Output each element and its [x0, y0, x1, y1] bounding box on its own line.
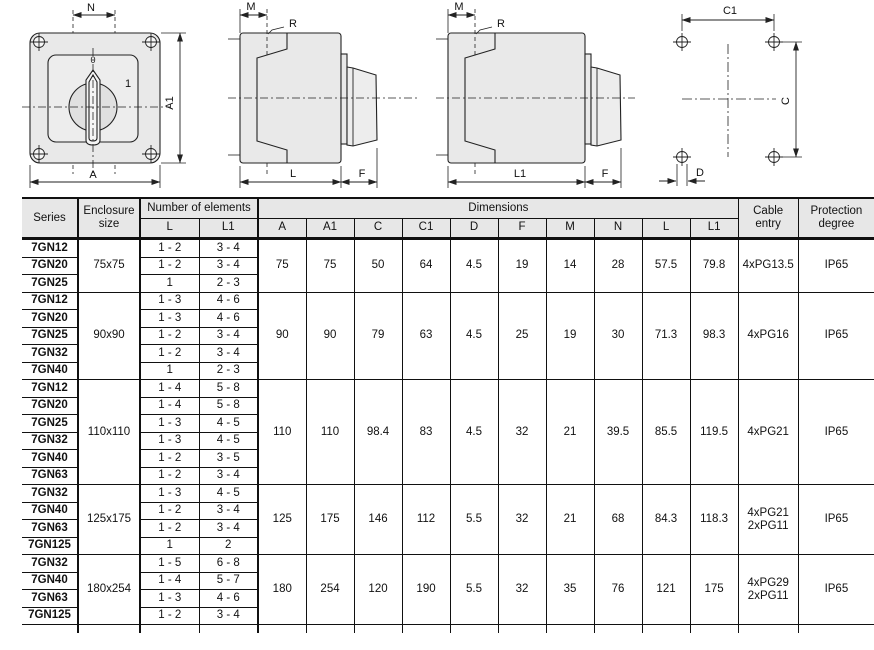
dimension-cell: 112	[402, 485, 450, 555]
series-cell: 7GN12	[22, 380, 78, 398]
dimension-cell: 63	[402, 292, 450, 380]
elements-l-cell: 1 - 2	[140, 450, 199, 468]
cable-entry-cell: 4xPG21	[738, 380, 798, 485]
elements-l-cell: 1 - 2	[140, 607, 199, 625]
dim-label-m: M	[246, 1, 255, 13]
elements-l-cell: 1	[140, 275, 199, 293]
dimension-cell: 32	[498, 485, 546, 555]
handle-side	[347, 67, 377, 146]
elements-l1-cell: 3 - 4	[199, 520, 258, 538]
dim-label-r: R	[497, 18, 505, 30]
spec-table-body: 7GN1275x751 - 23 - 4757550644.519142857.…	[22, 239, 874, 634]
clipped-cell	[78, 625, 140, 634]
elements-l1-cell: 4 - 5	[199, 432, 258, 450]
dimension-cell: 19	[546, 292, 594, 380]
dim-label-l: L	[290, 168, 296, 180]
dimension-cell: 50	[354, 239, 402, 293]
series-cell: 7GN32	[22, 345, 78, 363]
header-number-of-elements: Number of elements	[140, 198, 258, 218]
elements-l-cell: 1 - 3	[140, 432, 199, 450]
elements-l1-cell: 3 - 4	[199, 239, 258, 258]
dimension-cell: 119.5	[690, 380, 738, 485]
drill-hole	[673, 33, 691, 51]
dimension-cell: 121	[642, 555, 690, 625]
elements-l-cell: 1 - 3	[140, 310, 199, 328]
elements-l-cell: 1 - 3	[140, 590, 199, 608]
dim-label-l1: L1	[514, 168, 526, 180]
series-cell: 7GN40	[22, 572, 78, 590]
header-protection-degree: Protection degree	[798, 198, 874, 239]
dimension-cell: 146	[354, 485, 402, 555]
dim-label-r: R	[289, 18, 297, 30]
dimension-cell: 30	[594, 292, 642, 380]
dimension-cell: 175	[306, 485, 354, 555]
dimension-cell: 14	[546, 239, 594, 293]
enclosure-size-cell: 110x110	[78, 380, 140, 485]
elements-l1-cell: 3 - 4	[199, 607, 258, 625]
clipped-cell	[642, 625, 690, 634]
series-cell: 7GN63	[22, 520, 78, 538]
table-row: 7GN32125x1751 - 34 - 51251751461125.5322…	[22, 485, 874, 503]
clipped-cell	[690, 625, 738, 634]
header-series: Series	[22, 198, 78, 239]
dim-label-a1: A1	[164, 96, 176, 109]
drill-hole	[765, 148, 783, 166]
center-cross	[682, 44, 776, 157]
elements-l1-cell: 3 - 4	[199, 327, 258, 345]
elements-l-cell: 1 - 3	[140, 292, 199, 310]
elements-l-cell: 1 - 3	[140, 485, 199, 503]
enclosure-size-cell: 90x90	[78, 292, 140, 380]
series-cell: 7GN20	[22, 310, 78, 328]
subheader-m: M	[546, 218, 594, 239]
clipped-cell	[546, 625, 594, 634]
clipped-cell	[199, 625, 258, 634]
series-cell: 7GN25	[22, 327, 78, 345]
series-cell: 7GN20	[22, 397, 78, 415]
clipped-cell	[450, 625, 498, 634]
subheader-l1: L1	[199, 218, 258, 239]
side-view-l1: M R L1 F	[436, 1, 635, 188]
table-row: 7GN1275x751 - 23 - 4757550644.519142857.…	[22, 239, 874, 258]
dimension-cell: 75	[258, 239, 306, 293]
dimension-cell: 68	[594, 485, 642, 555]
elements-l1-cell: 3 - 5	[199, 450, 258, 468]
handle-side	[591, 67, 621, 146]
dimension-cell: 110	[306, 380, 354, 485]
dimension-cell: 125	[258, 485, 306, 555]
cable-entry-cell: 4xPG16	[738, 292, 798, 380]
header-cable-entry: Cable entry	[738, 198, 798, 239]
dimensions-table: Series Enclosure size Number of elements…	[22, 197, 874, 633]
dimension-cell: 90	[258, 292, 306, 380]
dimension-cell: 75	[306, 239, 354, 293]
dimension-cell: 5.5	[450, 485, 498, 555]
dimension-cell: 71.3	[642, 292, 690, 380]
drill-hole	[673, 148, 691, 166]
series-cell: 7GN32	[22, 432, 78, 450]
dimension-cell: 85.5	[642, 380, 690, 485]
dimension-cell: 118.3	[690, 485, 738, 555]
handle-neck	[585, 54, 591, 144]
elements-l-cell: 1 - 3	[140, 415, 199, 433]
dimension-cell: 57.5	[642, 239, 690, 293]
series-cell: 7GN63	[22, 590, 78, 608]
dim-label-f: F	[602, 168, 609, 180]
table-header-row: Series Enclosure size Number of elements…	[22, 198, 874, 218]
dim-label-f: F	[359, 168, 366, 180]
elements-l1-cell: 3 - 4	[199, 467, 258, 485]
dimension-cell: 180	[258, 555, 306, 625]
table-row: 7GN32180x2541 - 56 - 81802541201905.5323…	[22, 555, 874, 573]
side-view-l: M R L F	[228, 1, 420, 188]
protection-cell: IP65	[798, 292, 874, 380]
elements-l1-cell: 2 - 3	[199, 362, 258, 380]
series-cell: 7GN40	[22, 502, 78, 520]
protection-cell: IP65	[798, 239, 874, 293]
subheader-l-dim: L	[642, 218, 690, 239]
clipped-cell	[738, 625, 798, 634]
protection-cell: IP65	[798, 555, 874, 625]
dim-label-a: A	[89, 169, 97, 181]
dim-label-c: C	[780, 97, 792, 105]
enclosure-size-cell: 75x75	[78, 239, 140, 293]
clipped-cell	[354, 625, 402, 634]
clipped-cell	[306, 625, 354, 634]
elements-l1-cell: 3 - 4	[199, 345, 258, 363]
elements-l1-cell: 4 - 5	[199, 485, 258, 503]
dimension-cell: 76	[594, 555, 642, 625]
elements-l1-cell: 4 - 5	[199, 415, 258, 433]
dimension-cell: 120	[354, 555, 402, 625]
elements-l1-cell: 2 - 3	[199, 275, 258, 293]
dimension-cell: 32	[498, 555, 546, 625]
dimension-cell: 28	[594, 239, 642, 293]
dimension-cell: 98.3	[690, 292, 738, 380]
drill-hole	[765, 33, 783, 51]
dimension-cell: 175	[690, 555, 738, 625]
series-cell: 7GN20	[22, 257, 78, 275]
subheader-c: C	[354, 218, 402, 239]
elements-l-cell: 1 - 2	[140, 502, 199, 520]
dimension-cell: 98.4	[354, 380, 402, 485]
dimension-cell: 4.5	[450, 380, 498, 485]
dimension-cell: 110	[258, 380, 306, 485]
switch-position-1: 1	[125, 78, 131, 90]
dimension-cell: 79	[354, 292, 402, 380]
table-row: 7GN12110x1101 - 45 - 811011098.4834.5322…	[22, 380, 874, 398]
elements-l-cell: 1 - 4	[140, 572, 199, 590]
subheader-n: N	[594, 218, 642, 239]
series-cell: 7GN40	[22, 362, 78, 380]
elements-l1-cell: 6 - 8	[199, 555, 258, 573]
drilling-template: C1 C D	[659, 5, 802, 186]
series-cell: 7GN40	[22, 450, 78, 468]
cable-entry-cell: 4xPG21 2xPG11	[738, 485, 798, 555]
dim-label-c1: C1	[723, 5, 737, 17]
clipped-cell	[258, 625, 306, 634]
subheader-a1: A1	[306, 218, 354, 239]
series-cell: 7GN25	[22, 415, 78, 433]
clipped-row	[22, 625, 874, 634]
subheader-c1: C1	[402, 218, 450, 239]
elements-l1-cell: 5 - 7	[199, 572, 258, 590]
clipped-cell	[402, 625, 450, 634]
dimension-cell: 64	[402, 239, 450, 293]
front-view: N A1 A 0 1	[22, 2, 186, 188]
dimension-cell: 4.5	[450, 292, 498, 380]
dimension-cell: 83	[402, 380, 450, 485]
elements-l-cell: 1 - 2	[140, 520, 199, 538]
dimension-cell: 39.5	[594, 380, 642, 485]
dimension-cell: 4.5	[450, 239, 498, 293]
subheader-f: F	[498, 218, 546, 239]
dimension-cell: 35	[546, 555, 594, 625]
switch-position-0: 0	[90, 55, 95, 65]
protection-cell: IP65	[798, 380, 874, 485]
elements-l-cell: 1 - 2	[140, 345, 199, 363]
elements-l1-cell: 5 - 8	[199, 380, 258, 398]
series-cell: 7GN12	[22, 292, 78, 310]
cable-entry-cell: 4xPG29 2xPG11	[738, 555, 798, 625]
dimension-cell: 79.8	[690, 239, 738, 293]
series-cell: 7GN25	[22, 275, 78, 293]
datasheet-page: N A1 A 0 1	[0, 0, 874, 650]
technical-drawings: N A1 A 0 1	[0, 0, 874, 197]
dimension-cell: 21	[546, 380, 594, 485]
dimension-cell: 190	[402, 555, 450, 625]
clipped-cell	[498, 625, 546, 634]
dimension-cell: 19	[498, 239, 546, 293]
enclosure-size-cell: 125x175	[78, 485, 140, 555]
dim-label-d: D	[696, 167, 704, 179]
header-enclosure-size: Enclosure size	[78, 198, 140, 239]
elements-l-cell: 1 - 2	[140, 327, 199, 345]
clipped-cell	[140, 625, 199, 634]
subheader-l: L	[140, 218, 199, 239]
elements-l-cell: 1 - 2	[140, 467, 199, 485]
dimension-cell: 25	[498, 292, 546, 380]
header-dimensions: Dimensions	[258, 198, 738, 218]
subheader-a: A	[258, 218, 306, 239]
cable-entry-cell: 4xPG13.5	[738, 239, 798, 293]
elements-l1-cell: 4 - 6	[199, 292, 258, 310]
table-row: 7GN1290x901 - 34 - 6909079634.525193071.…	[22, 292, 874, 310]
dim-label-m: M	[454, 1, 463, 13]
elements-l1-cell: 3 - 4	[199, 257, 258, 275]
elements-l1-cell: 3 - 4	[199, 502, 258, 520]
protection-cell: IP65	[798, 485, 874, 555]
elements-l1-cell: 2	[199, 537, 258, 555]
dimension-cell: 254	[306, 555, 354, 625]
elements-l-cell: 1 - 4	[140, 397, 199, 415]
elements-l1-cell: 4 - 6	[199, 310, 258, 328]
elements-l-cell: 1 - 5	[140, 555, 199, 573]
series-cell: 7GN32	[22, 485, 78, 503]
elements-l-cell: 1 - 2	[140, 239, 199, 258]
elements-l-cell: 1 - 2	[140, 257, 199, 275]
elements-l-cell: 1 - 4	[140, 380, 199, 398]
clipped-cell	[594, 625, 642, 634]
elements-l-cell: 1	[140, 537, 199, 555]
dimension-cell: 5.5	[450, 555, 498, 625]
series-cell: 7GN12	[22, 239, 78, 258]
dimension-cell: 90	[306, 292, 354, 380]
elements-l1-cell: 5 - 8	[199, 397, 258, 415]
elements-l1-cell: 4 - 6	[199, 590, 258, 608]
elements-l-cell: 1	[140, 362, 199, 380]
handle-neck	[341, 54, 347, 144]
clipped-cell	[22, 625, 78, 634]
dim-label-n: N	[87, 2, 95, 14]
series-cell: 7GN32	[22, 555, 78, 573]
dimension-cell: 84.3	[642, 485, 690, 555]
series-cell: 7GN63	[22, 467, 78, 485]
clipped-cell	[798, 625, 874, 634]
dimension-cell: 32	[498, 380, 546, 485]
enclosure-size-cell: 180x254	[78, 555, 140, 625]
dimension-cell: 21	[546, 485, 594, 555]
series-cell: 7GN125	[22, 537, 78, 555]
series-cell: 7GN125	[22, 607, 78, 625]
subheader-d: D	[450, 218, 498, 239]
subheader-l1-dim: L1	[690, 218, 738, 239]
